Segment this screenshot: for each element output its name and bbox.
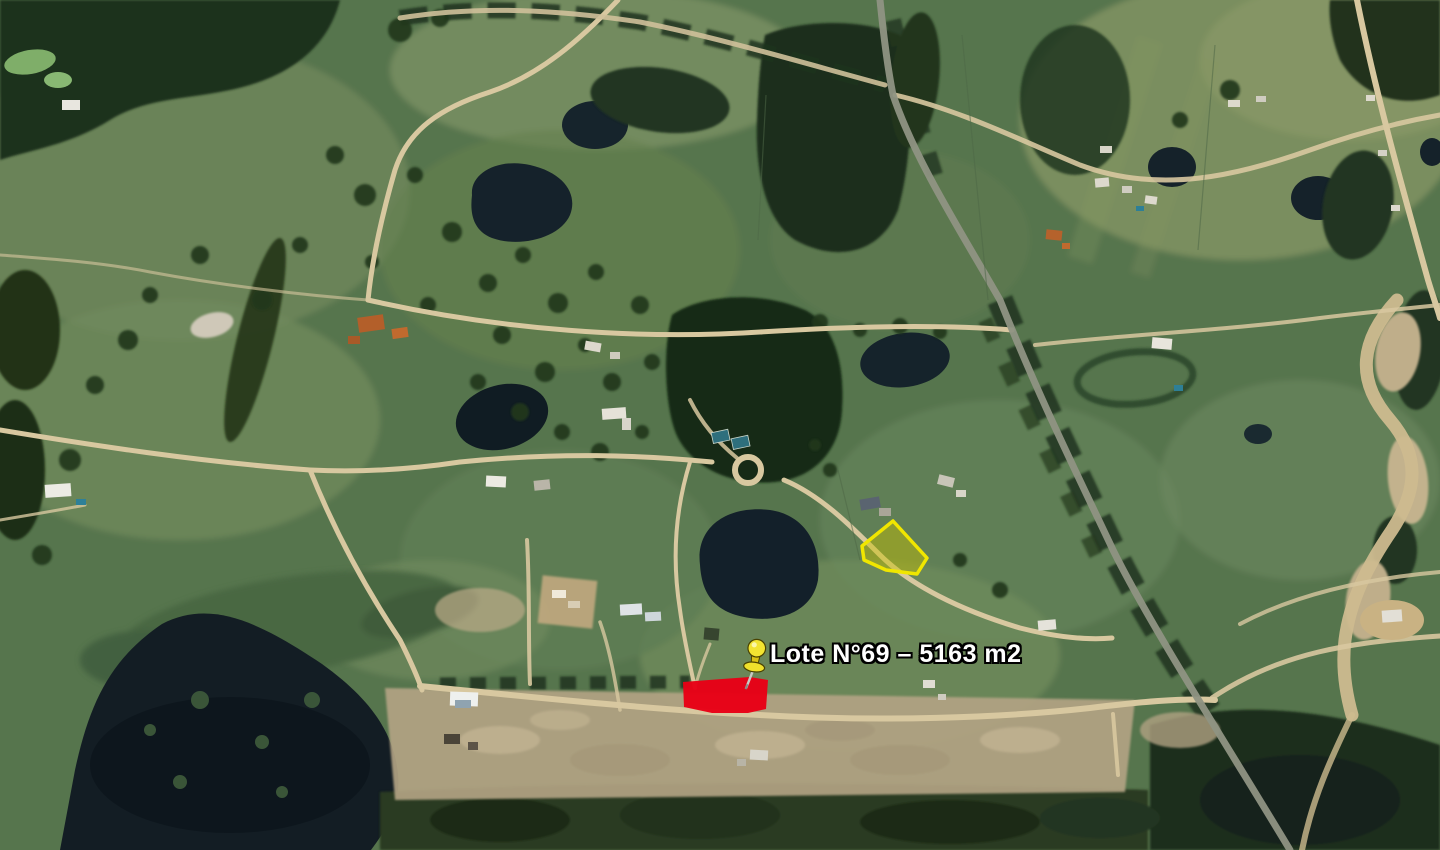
satellite-map xyxy=(0,0,1440,850)
central-pond xyxy=(700,509,819,619)
selected-parcel-polygon[interactable] xyxy=(683,677,768,713)
pond xyxy=(1244,424,1272,444)
map-viewport[interactable]: Lote N°69 – 5163 m2 xyxy=(0,0,1440,850)
